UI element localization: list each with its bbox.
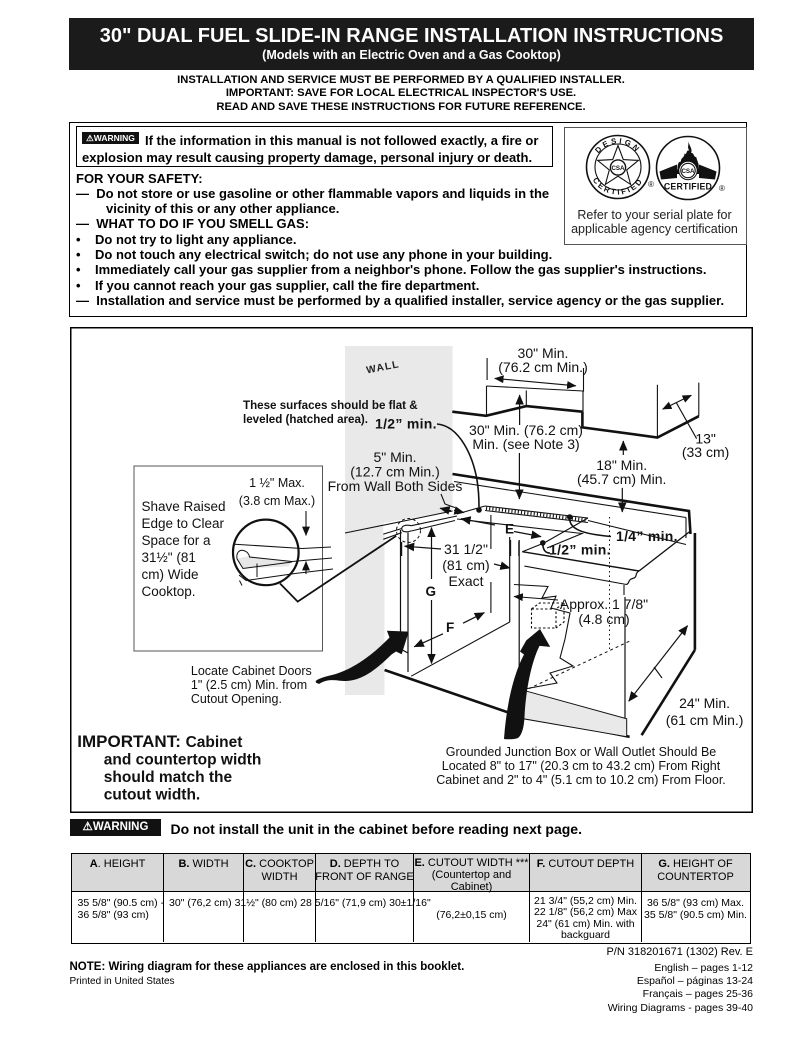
svg-text:Locate Cabinet Doors: Locate Cabinet Doors xyxy=(191,664,312,678)
svg-text:Space for a: Space for a xyxy=(142,533,212,548)
svg-text:1/2” min.: 1/2” min. xyxy=(549,542,611,558)
svg-text:(3.8 cm Max.): (3.8 cm Max.) xyxy=(239,494,315,508)
svg-text:(76.2 cm Min.): (76.2 cm Min.) xyxy=(498,359,587,375)
svg-text:CERTIFIED: CERTIFIED xyxy=(591,176,645,197)
svg-text:Cooktop.: Cooktop. xyxy=(142,584,196,599)
svg-text:From Wall Both Sides: From Wall Both Sides xyxy=(328,478,463,494)
svg-text:Cutout Opening.: Cutout Opening. xyxy=(191,692,282,706)
svg-text:1/4” min.: 1/4” min. xyxy=(616,528,678,544)
svg-text:®: ® xyxy=(648,180,654,189)
svg-text:(4.8 cm): (4.8 cm) xyxy=(578,611,629,627)
svg-text:Edge to Clear: Edge to Clear xyxy=(142,516,225,531)
svg-text:1/2” min.: 1/2” min. xyxy=(375,416,437,432)
svg-text:1 ½" Max.: 1 ½" Max. xyxy=(249,476,305,490)
svg-text:(33 cm): (33 cm) xyxy=(682,444,729,460)
svg-text:Cabinet and 2" to 4" (5.1 cm t: Cabinet and 2" to 4" (5.1 cm to 10.2 cm)… xyxy=(436,773,726,787)
svg-text:Grounded Junction Box or Wall: Grounded Junction Box or Wall Outlet Sho… xyxy=(446,745,717,759)
svg-text:E: E xyxy=(505,522,514,537)
svg-text:CSA: CSA xyxy=(681,168,695,175)
svg-text:31½" (81: 31½" (81 xyxy=(142,550,196,565)
svg-text:31 1/2": 31 1/2" xyxy=(444,541,488,557)
svg-text:and countertop width: and countertop width xyxy=(104,752,262,769)
svg-text:CERTIFIED: CERTIFIED xyxy=(664,182,712,192)
svg-text:cutout width.: cutout width. xyxy=(104,787,200,804)
svg-text:24" Min.: 24" Min. xyxy=(679,695,730,711)
svg-text:leveled (hatched area).: leveled (hatched area). xyxy=(243,413,368,426)
svg-text:Approx. 1 7/8": Approx. 1 7/8" xyxy=(560,596,648,612)
svg-text:Exact: Exact xyxy=(448,573,483,589)
svg-text:(61 cm Min.): (61 cm Min.) xyxy=(666,712,744,728)
svg-text:1" (2.5 cm) Min. from: 1" (2.5 cm) Min. from xyxy=(191,678,307,692)
svg-text:(81 cm): (81 cm) xyxy=(442,557,489,573)
svg-text:Located 8" to 17" (20.3 cm to: Located 8" to 17" (20.3 cm to 43.2 cm) F… xyxy=(442,759,721,773)
svg-text:®: ® xyxy=(719,184,725,193)
svg-text:CSA: CSA xyxy=(611,165,625,172)
svg-text:(45.7 cm) Min.: (45.7 cm) Min. xyxy=(577,471,666,487)
svg-text:cm) Wide: cm) Wide xyxy=(142,567,199,582)
svg-text:should match the: should match the xyxy=(104,769,233,786)
svg-text:These surfaces should be flat: These surfaces should be flat & xyxy=(243,399,418,412)
svg-text:G: G xyxy=(426,584,437,599)
svg-text:Min. (see Note 3): Min. (see Note 3) xyxy=(472,436,579,452)
svg-text:Shave Raised: Shave Raised xyxy=(142,499,226,514)
svg-text:F: F xyxy=(446,620,454,635)
svg-text:IMPORTANT: Cabinet: IMPORTANT: Cabinet xyxy=(77,732,242,751)
